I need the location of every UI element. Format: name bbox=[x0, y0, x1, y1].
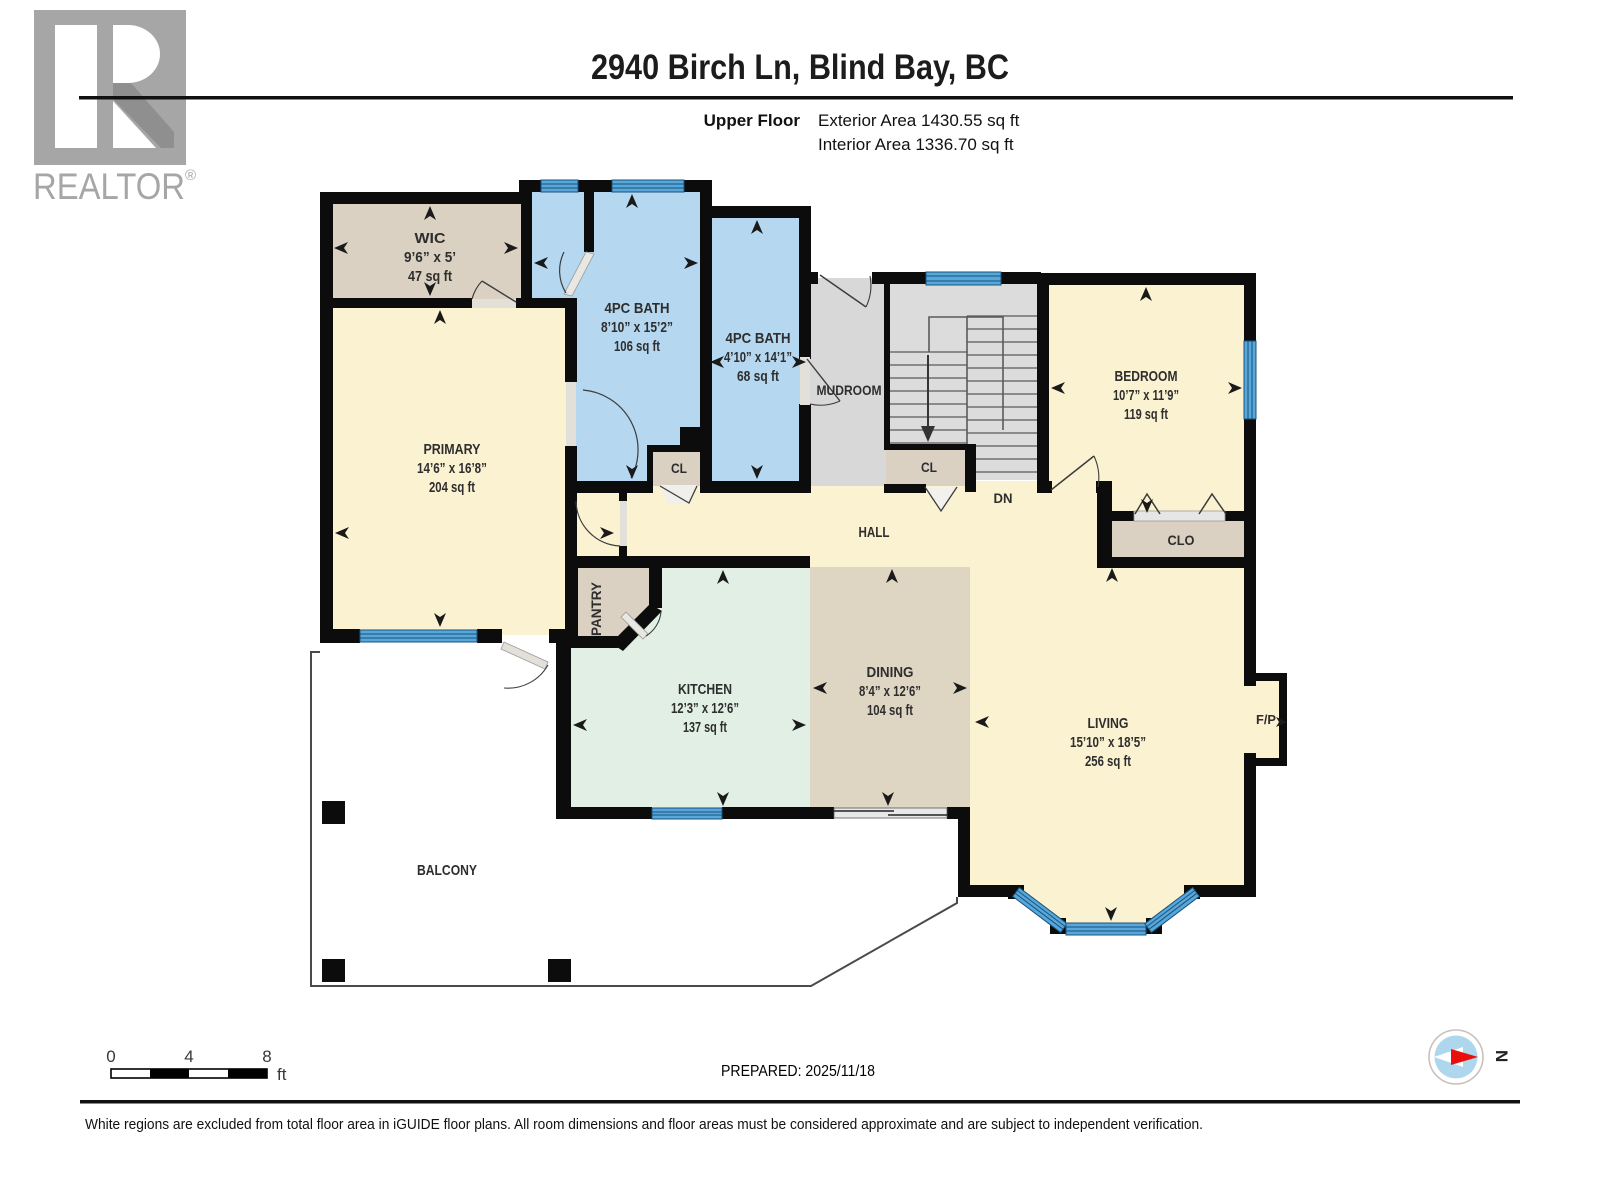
svg-text:2940 Birch Ln, Blind Bay, BC: 2940 Birch Ln, Blind Bay, BC bbox=[591, 48, 1009, 87]
svg-text:PANTRY: PANTRY bbox=[588, 581, 604, 636]
svg-text:Exterior Area 1430.55 sq ft: Exterior Area 1430.55 sq ft bbox=[818, 111, 1020, 130]
svg-text:8’4” x 12’6”: 8’4” x 12’6” bbox=[859, 684, 921, 700]
svg-text:REALTOR: REALTOR bbox=[33, 166, 185, 207]
svg-text:10’7” x 11’9”: 10’7” x 11’9” bbox=[1113, 388, 1179, 404]
svg-text:256 sq ft: 256 sq ft bbox=[1085, 754, 1131, 770]
svg-text:HALL: HALL bbox=[859, 524, 890, 541]
svg-text:Upper Floor: Upper Floor bbox=[704, 111, 801, 130]
svg-text:DINING: DINING bbox=[867, 664, 914, 681]
svg-text:15’10” x 18’5”: 15’10” x 18’5” bbox=[1070, 735, 1146, 751]
svg-text:4: 4 bbox=[184, 1047, 193, 1066]
svg-text:CL: CL bbox=[671, 460, 687, 476]
svg-text:8’10” x 15’2”: 8’10” x 15’2” bbox=[601, 320, 673, 336]
svg-text:MUDROOM: MUDROOM bbox=[817, 382, 882, 398]
svg-text:12’3” x 12’6”: 12’3” x 12’6” bbox=[671, 701, 739, 717]
svg-text:8: 8 bbox=[262, 1047, 271, 1066]
svg-text:137 sq ft: 137 sq ft bbox=[683, 720, 727, 736]
svg-text:4PC BATH: 4PC BATH bbox=[726, 330, 791, 347]
svg-text:®: ® bbox=[185, 167, 196, 184]
svg-text:N: N bbox=[1492, 1050, 1511, 1062]
svg-text:WIC: WIC bbox=[415, 230, 446, 247]
svg-text:104 sq ft: 104 sq ft bbox=[867, 703, 913, 719]
svg-text:0: 0 bbox=[106, 1047, 115, 1066]
svg-text:PRIMARY: PRIMARY bbox=[424, 441, 481, 458]
svg-text:204 sq ft: 204 sq ft bbox=[429, 480, 475, 496]
svg-text:ft: ft bbox=[277, 1065, 287, 1084]
svg-text:CLO: CLO bbox=[1168, 532, 1195, 548]
svg-text:9’6” x 5’: 9’6” x 5’ bbox=[404, 250, 456, 266]
svg-text:4PC BATH: 4PC BATH bbox=[605, 300, 670, 317]
svg-text:White regions are excluded fro: White regions are excluded from total fl… bbox=[85, 1116, 1203, 1133]
svg-text:68 sq ft: 68 sq ft bbox=[737, 369, 779, 385]
svg-text:119 sq ft: 119 sq ft bbox=[1124, 407, 1168, 423]
svg-text:KITCHEN: KITCHEN bbox=[678, 681, 732, 698]
svg-text:PREPARED: 2025/11/18: PREPARED: 2025/11/18 bbox=[721, 1063, 875, 1080]
svg-text:F/P: F/P bbox=[1256, 712, 1276, 727]
svg-text:4’10” x 14’1”: 4’10” x 14’1” bbox=[724, 350, 792, 366]
svg-text:14’6” x 16’8”: 14’6” x 16’8” bbox=[417, 461, 487, 477]
svg-text:BEDROOM: BEDROOM bbox=[1115, 368, 1178, 385]
svg-text:LIVING: LIVING bbox=[1088, 715, 1129, 732]
svg-text:47 sq ft: 47 sq ft bbox=[408, 269, 452, 285]
svg-text:BALCONY: BALCONY bbox=[417, 862, 477, 879]
svg-text:Interior Area 1336.70 sq ft: Interior Area 1336.70 sq ft bbox=[818, 135, 1014, 154]
svg-text:DN: DN bbox=[994, 490, 1013, 506]
svg-text:CL: CL bbox=[921, 459, 937, 475]
svg-text:106 sq ft: 106 sq ft bbox=[614, 339, 660, 355]
